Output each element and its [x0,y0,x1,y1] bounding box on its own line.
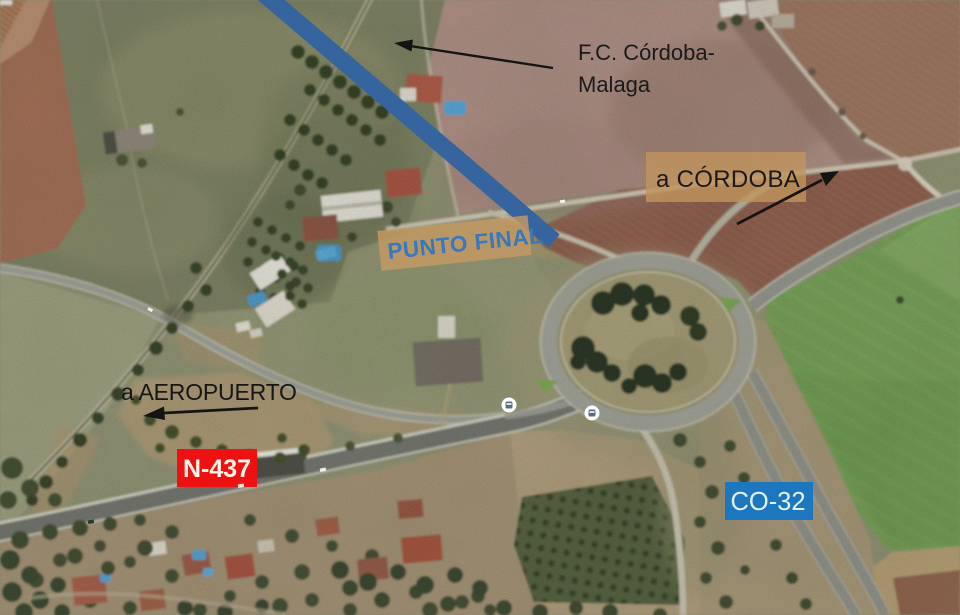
svg-text:Malaga: Malaga [578,72,651,97]
svg-text:a AEROPUERTO: a AEROPUERTO [121,379,297,405]
svg-text:CO-32: CO-32 [730,488,805,516]
svg-text:N-437: N-437 [183,455,251,483]
svg-text:a CÓRDOBA: a CÓRDOBA [656,166,800,193]
svg-text:F.C. Córdoba-: F.C. Córdoba- [578,40,715,65]
